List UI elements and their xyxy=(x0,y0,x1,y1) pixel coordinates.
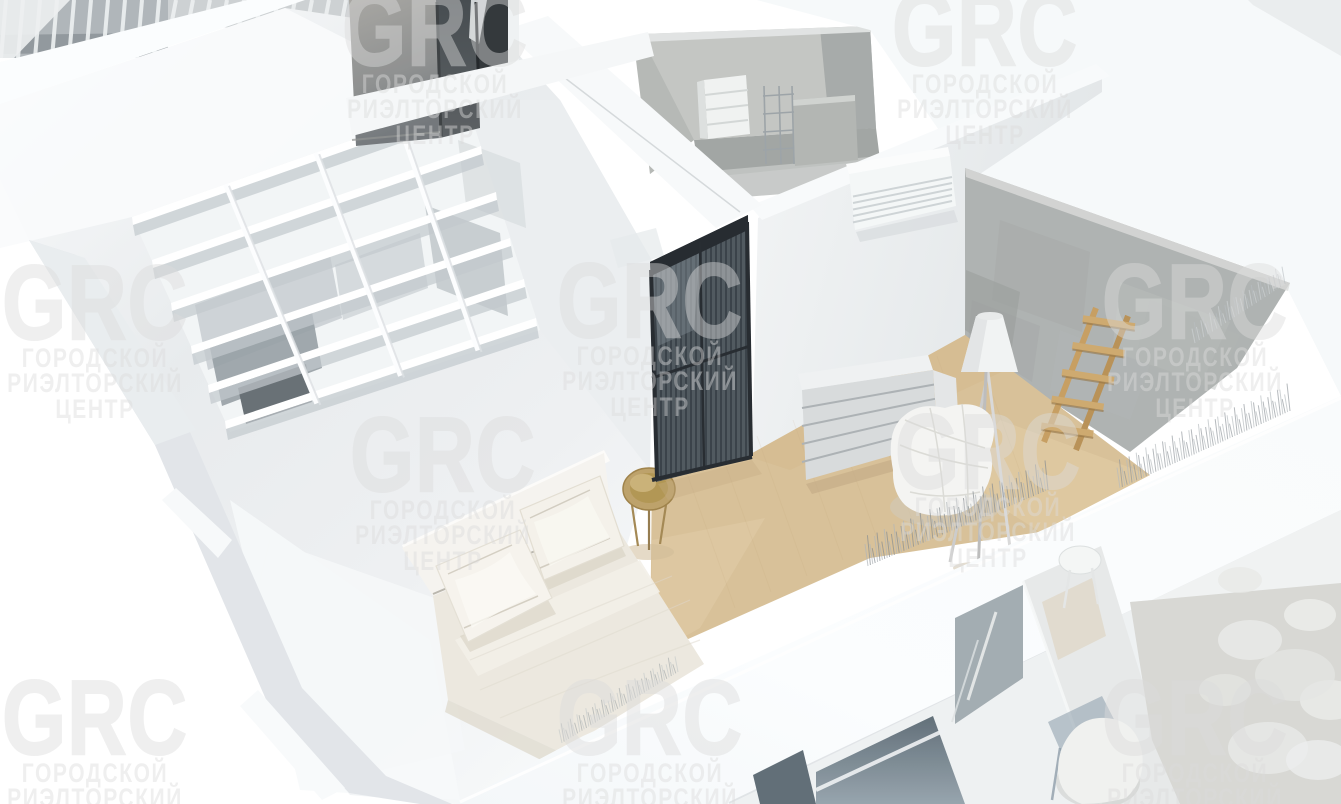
svg-text:ЦЕНТР: ЦЕНТР xyxy=(948,544,1027,574)
svg-text:ЦЕНТР: ЦЕНТР xyxy=(610,393,689,423)
svg-text:ЦЕНТР: ЦЕНТР xyxy=(1155,394,1234,424)
svg-text:РИЭЛТОРСКИЙ: РИЭЛТОРСКИЙ xyxy=(562,782,738,804)
svg-text:РИЭЛТОРСКИЙ: РИЭЛТОРСКИЙ xyxy=(7,782,183,804)
svg-text:ЦЕНТР: ЦЕНТР xyxy=(55,395,134,425)
svg-text:ЦЕНТР: ЦЕНТР xyxy=(395,121,474,151)
svg-text:ЦЕНТР: ЦЕНТР xyxy=(403,547,482,577)
svg-text:РИЭЛТОРСКИЙ: РИЭЛТОРСКИЙ xyxy=(1107,782,1283,804)
svg-text:ЦЕНТР: ЦЕНТР xyxy=(945,121,1024,151)
